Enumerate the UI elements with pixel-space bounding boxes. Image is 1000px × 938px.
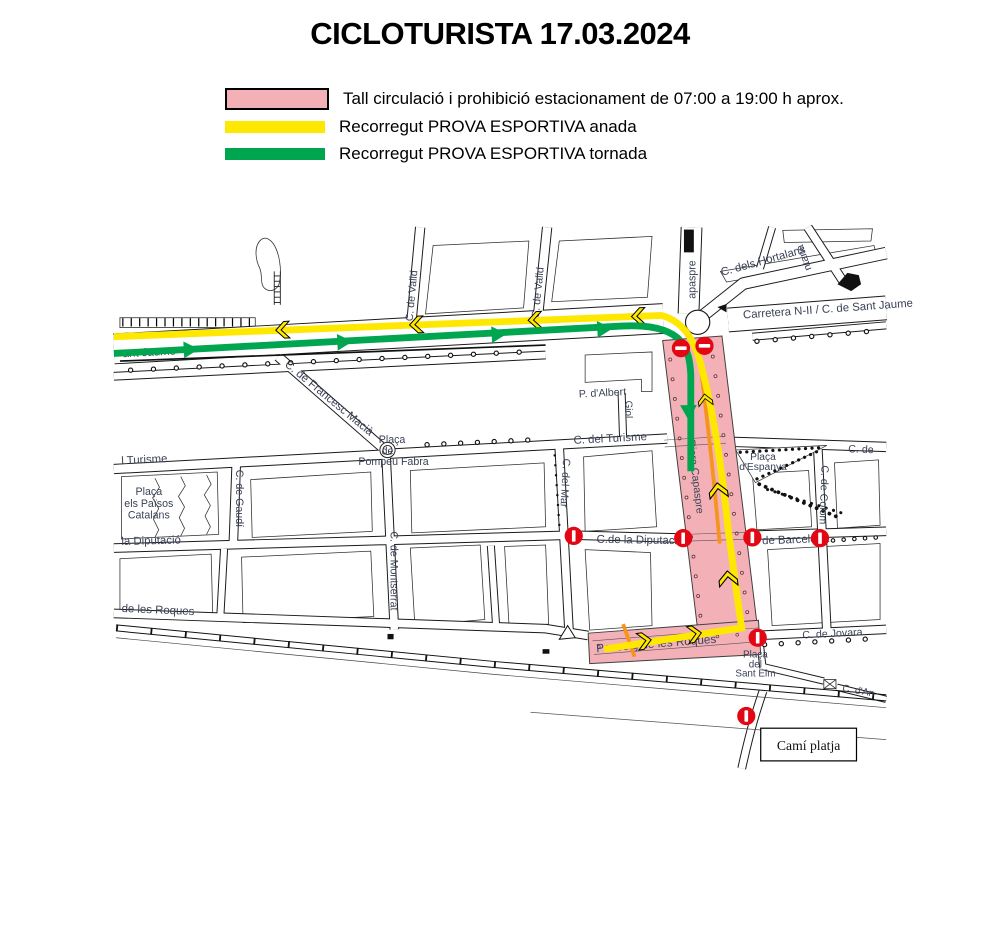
place-label-pompeu-fabra: Plaça [379, 434, 406, 446]
route-anada-swatch [225, 121, 325, 133]
street-label-francesc-macia: C. de Francesc Macià [282, 359, 376, 439]
legend-label: Recorregut PROVA ESPORTIVA tornada [339, 144, 647, 164]
street-label-diputacio: C.de la Diputació [596, 534, 683, 548]
legend-label: Recorregut PROVA ESPORTIVA anada [339, 117, 637, 137]
svg-text:Catalans: Catalans [128, 509, 170, 521]
building-solid [388, 634, 394, 639]
pond [256, 238, 280, 290]
building-solid [543, 649, 550, 654]
street-label-diputacio-oest: la Diputació [121, 534, 181, 548]
svg-text:els Països: els Països [124, 498, 173, 510]
route-map: ant Jaume Carretera N-II / C. de Sant Ja… [0, 225, 1000, 938]
legend-item-anada: Recorregut PROVA ESPORTIVA anada [225, 117, 844, 137]
legend-item-tornada: Recorregut PROVA ESPORTIVA tornada [225, 144, 844, 164]
street-label-capaspre-nord: apaspre [686, 260, 698, 298]
no-entry-icon [672, 339, 690, 357]
svg-text:Pompeu Fabra: Pompeu Fabra [358, 456, 428, 468]
street-label-jovara: C. de Jovara [802, 626, 863, 641]
legend: Tall circulació i prohibició estacioname… [225, 88, 844, 171]
street-label-gaudi: C. de Gaudí [233, 470, 245, 527]
cami-platja-box: Camí platja [761, 728, 857, 761]
closure-zone-riera [663, 336, 757, 629]
cami-platja-label: Camí platja [777, 738, 840, 753]
no-entry-icon [565, 527, 583, 545]
no-entry-icon [674, 529, 692, 547]
page-title: CICLOTURISTA 17.03.2024 [0, 16, 1000, 52]
no-entry-icon [695, 337, 713, 355]
no-entry-icon [811, 529, 829, 547]
legend-label: Tall circulació i prohibició estacioname… [343, 89, 844, 109]
svg-text:d'Espanya: d'Espanya [739, 462, 787, 473]
no-entry-icon [737, 707, 755, 725]
railway [116, 625, 886, 740]
street-label-turisme-oest: l Turisme [121, 453, 168, 467]
level-crossing-icon [824, 680, 836, 689]
svg-text:Sant Elm: Sant Elm [735, 669, 775, 680]
building-solid [684, 230, 694, 253]
route-tornada-swatch [225, 148, 325, 160]
street-label-c-de-est: C. de [848, 443, 874, 456]
legend-item-closure: Tall circulació i prohibició estacioname… [225, 88, 844, 110]
no-entry-icon [743, 528, 761, 546]
no-entry-icon [749, 629, 767, 647]
closure-zone-swatch [225, 88, 329, 110]
street-label-valld-oest: C. de Valld [404, 270, 421, 322]
street-label-giol: Giol [622, 401, 633, 419]
street-label-albert: P. d'Albert [579, 386, 627, 400]
city-blocks [120, 229, 880, 630]
street-label-montserrat: C. de Montserrat [388, 531, 400, 610]
street-label-colom: C. de Colom [816, 465, 830, 525]
flyer-page: CICLOTURISTA 17.03.2024 Tall circulació … [0, 0, 1000, 938]
place-label-paisos-catalans: Plaça [136, 486, 163, 498]
